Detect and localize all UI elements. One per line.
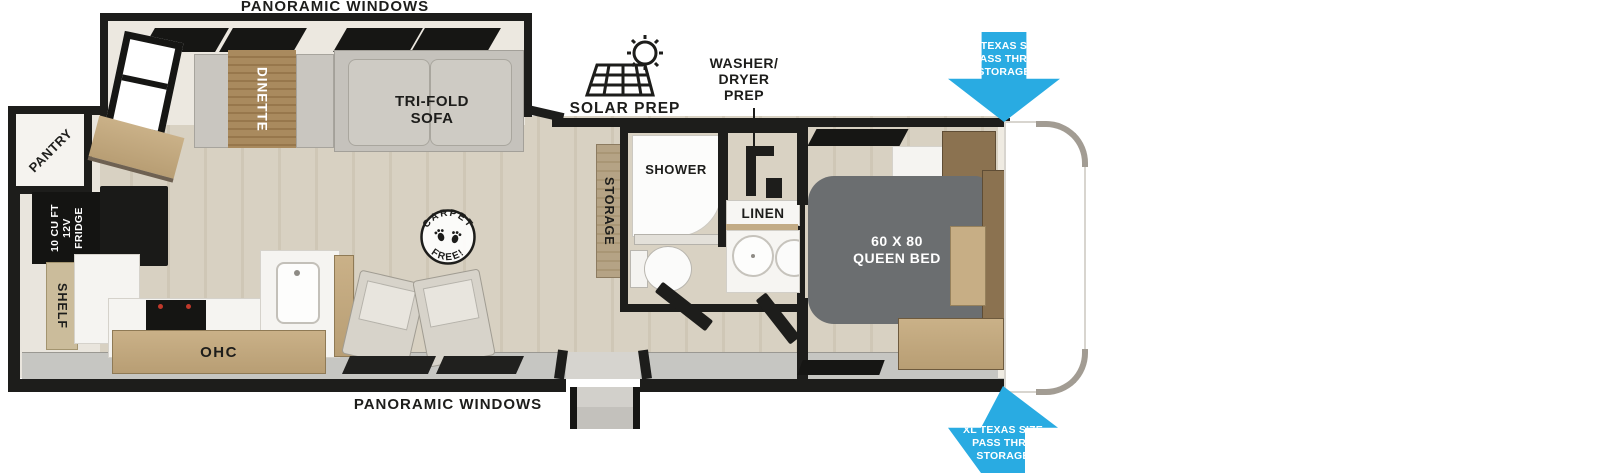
- bathroom-vanity: [726, 230, 800, 293]
- slide-ceiling-window: [219, 28, 307, 52]
- vanity-sink-partial: [775, 239, 800, 277]
- washer-hookup: [746, 146, 774, 156]
- step-tread: [577, 387, 633, 407]
- kitchen-ohc-label: OHC: [200, 344, 238, 361]
- rv-floorplan: DINETTE TRI-FOLD SOFA PANTRY 10 CU FT 12…: [0, 0, 1600, 473]
- pantry-label: PANTRY: [25, 125, 74, 174]
- bottom-window: [436, 356, 524, 374]
- drain: [751, 254, 755, 258]
- dinette-table: DINETTE: [228, 50, 296, 148]
- kitchen-ohc: OHC: [112, 330, 326, 374]
- dinette-bench-right: [296, 54, 334, 148]
- solar-prep-label: SOLAR PREP: [540, 100, 710, 118]
- bedroom-top-window: [807, 129, 908, 146]
- bedside-shelf: [950, 226, 986, 306]
- entry-steps: [570, 387, 640, 429]
- washer-dryer-prep-label: WASHER/ DRYER PREP: [688, 55, 800, 103]
- bottom-window: [342, 356, 436, 374]
- burner-knob: [158, 304, 163, 309]
- entry-door-threshold: [566, 352, 640, 379]
- bedroom-wardrobe-bottom: [898, 318, 1004, 370]
- shower-label: SHOWER: [630, 162, 722, 177]
- chair-cushion: [423, 279, 480, 328]
- pass-thru-storage-arrow-bottom: XL TEXAS SIZE PASS THRU STORAGE: [948, 386, 1058, 473]
- shelf-label: SHELF: [55, 283, 69, 329]
- cap-trim-bottom: [1036, 349, 1088, 395]
- chair-cushion: [358, 280, 416, 330]
- fridge-label: 10 CU FT 12V FRIDGE: [49, 204, 85, 252]
- vanity-sink: [732, 235, 774, 277]
- slide-right-wall: [524, 13, 532, 117]
- pantry: PANTRY: [8, 106, 92, 194]
- shower: [632, 135, 722, 237]
- faucet: [294, 270, 300, 276]
- cap-trim-top: [1036, 121, 1088, 167]
- trifold-sofa-label: TRI-FOLD SOFA: [352, 94, 512, 128]
- slide-ceiling-window: [333, 28, 423, 52]
- washer-dryer-pointer-line: [753, 108, 755, 172]
- pass-thru-storage-arrow-top: XL TEXAS SIZE PASS THRU STORAGE: [948, 32, 1060, 122]
- panoramic-windows-bottom-label: PANORAMIC WINDOWS: [348, 396, 548, 413]
- window-mullion: [122, 74, 168, 89]
- dinette-label: DINETTE: [255, 67, 270, 132]
- bedroom-bottom-window: [797, 360, 884, 375]
- shower-sill: [634, 234, 720, 245]
- burner-knob: [186, 304, 191, 309]
- storage-cabinet: STORAGE: [596, 144, 622, 278]
- bottom-wall: [8, 379, 1008, 392]
- queen-bed-label: 60 X 80 QUEEN BED: [853, 233, 941, 268]
- dinette-bench-left: [194, 54, 230, 148]
- linen-closet: LINEN: [726, 200, 800, 226]
- panoramic-windows-top-label: PANORAMIC WINDOWS: [225, 0, 445, 15]
- carpet-free-stamp: CARPET FREE!: [414, 206, 482, 270]
- linen-label: LINEN: [742, 206, 785, 221]
- solar-prep-icon: [583, 33, 667, 101]
- kitchen-sink: [276, 262, 320, 324]
- washer-hookup: [766, 178, 782, 198]
- bedroom-wall-upper: [797, 125, 808, 205]
- storage-label: STORAGE: [602, 177, 616, 246]
- slide-ceiling-window: [411, 28, 501, 52]
